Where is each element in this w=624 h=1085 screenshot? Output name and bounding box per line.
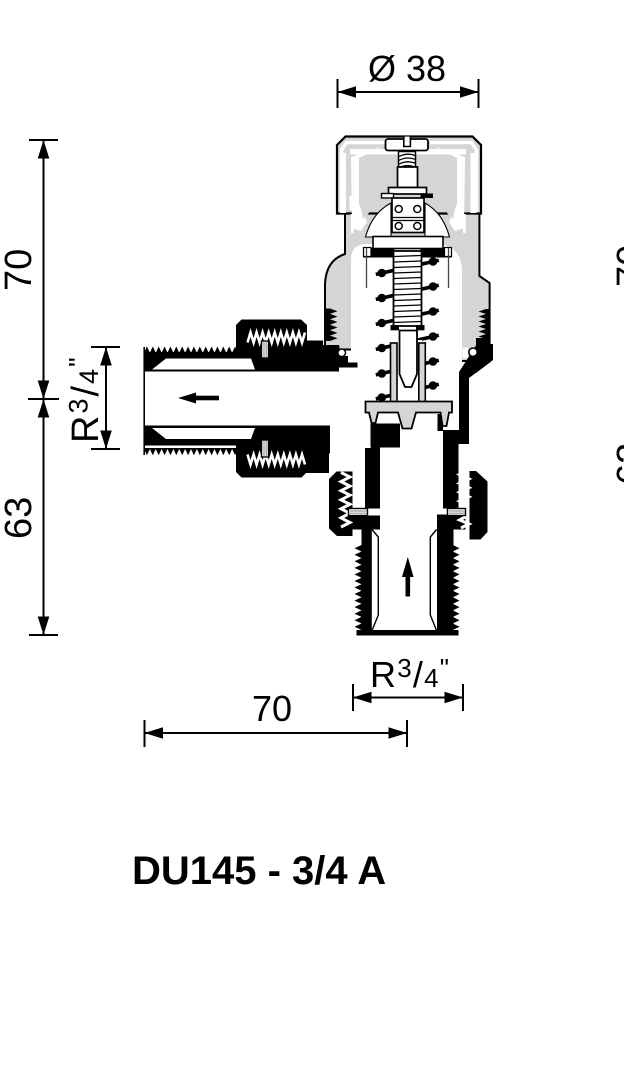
svg-text:63: 63 <box>0 497 40 539</box>
svg-text:63: 63 <box>610 443 624 485</box>
svg-text:DU145 - 3/4 A: DU145 - 3/4 A <box>132 849 386 893</box>
svg-text:70: 70 <box>610 245 624 287</box>
svg-text:Ø 38: Ø 38 <box>368 48 446 89</box>
svg-text:70: 70 <box>0 249 40 291</box>
svg-text:70: 70 <box>252 688 292 729</box>
